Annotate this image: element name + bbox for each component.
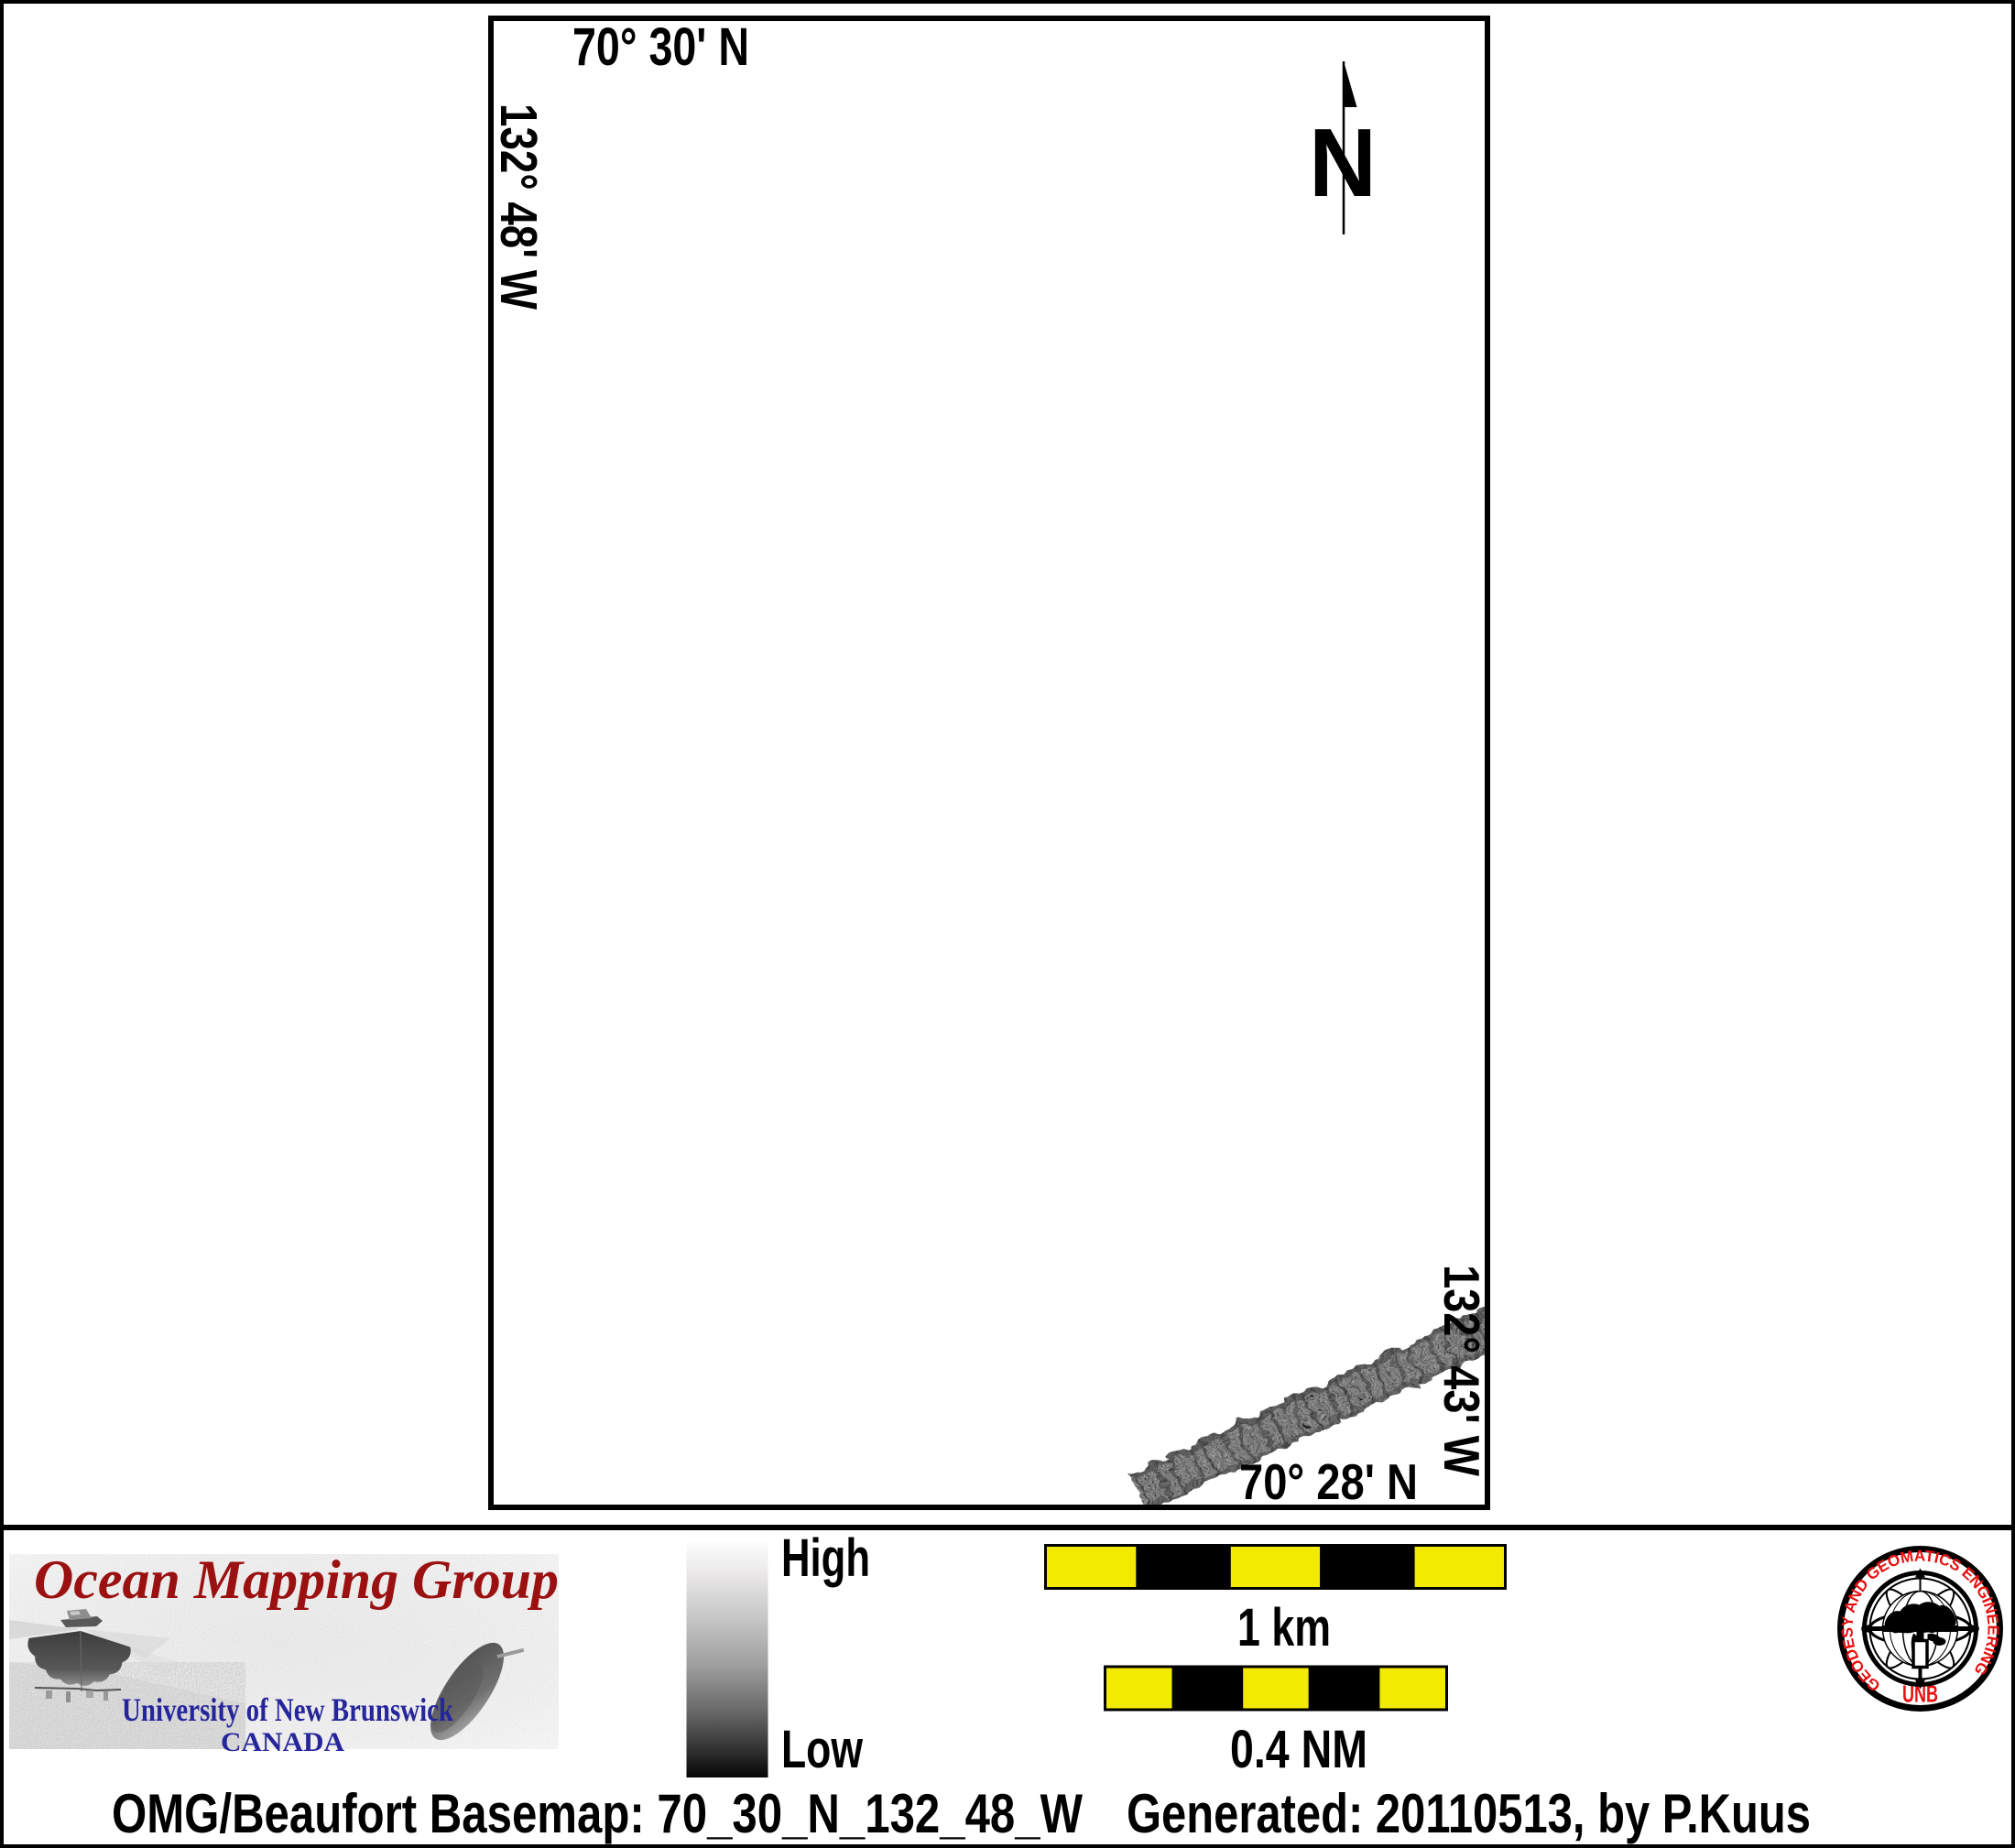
svg-text:University of New Brunswick: University of New Brunswick: [122, 1691, 453, 1728]
svg-text:CANADA: CANADA: [221, 1727, 344, 1757]
svg-text:OMG/Beaufort Basemap: 70_30_N_: OMG/Beaufort Basemap: 70_30_N_132_48_W: [112, 1783, 1083, 1844]
svg-text:70° 30' N: 70° 30' N: [572, 17, 749, 77]
svg-text:N: N: [1309, 109, 1377, 217]
svg-text:Ocean Mapping Group: Ocean Mapping Group: [34, 1549, 559, 1610]
svg-text:132° 48' W: 132° 48' W: [489, 103, 548, 310]
svg-text:0.4 NM: 0.4 NM: [1230, 1720, 1367, 1779]
svg-text:High: High: [781, 1528, 870, 1588]
svg-text:Low: Low: [781, 1720, 864, 1779]
svg-text:Generated: 20110513, by P.Kuus: Generated: 20110513, by P.Kuus: [1127, 1783, 1811, 1844]
svg-text:132° 43' W: 132° 43' W: [1433, 1265, 1490, 1476]
svg-text:70° 28' N: 70° 28' N: [1239, 1453, 1418, 1510]
svg-text:1 km: 1 km: [1237, 1598, 1331, 1658]
